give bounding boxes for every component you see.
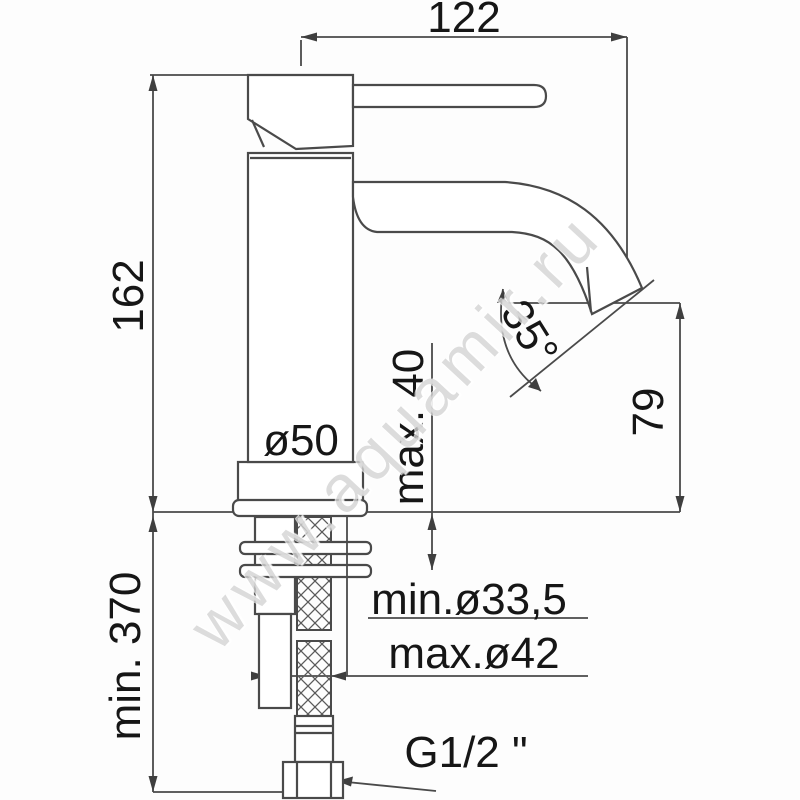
dim-label-base-diameter: ø50 [263, 419, 339, 463]
dim-label-hole-min: min.ø33,5 [371, 578, 567, 622]
under-counter-assembly [240, 517, 371, 798]
dim-label-outlet-height: 79 [627, 388, 671, 437]
braided-hose-segment [297, 554, 331, 565]
dim-label-hole-max: max.ø42 [388, 632, 559, 676]
dim-label-deck-thickness: max. 40 [387, 349, 431, 506]
mounting-washer-upper [240, 542, 371, 554]
mounting-washer-lower [240, 565, 371, 577]
braided-hose-segment [297, 641, 331, 716]
dim-label-thread: G1/2 " [404, 731, 527, 775]
lever-handle [353, 85, 546, 107]
hose-nut-g12 [283, 762, 343, 798]
technical-drawing-canvas: 122 162 min. 370 ø50 max. 40 35° 79 min.… [0, 0, 800, 800]
dim-label-total-height: 162 [107, 259, 151, 332]
hose-collar [295, 716, 333, 762]
cartridge-cap [248, 75, 353, 149]
mounting-stud-lower [259, 614, 291, 708]
braided-hose-segment [297, 517, 331, 542]
base-ring [238, 462, 363, 501]
base-flange [233, 500, 367, 516]
dim-label-spout-reach: 122 [427, 0, 500, 40]
leader-line-thread [337, 781, 436, 791]
dim-label-hose-length: min. 370 [104, 572, 148, 741]
spout [353, 182, 642, 314]
braided-hose-segment [297, 577, 331, 630]
